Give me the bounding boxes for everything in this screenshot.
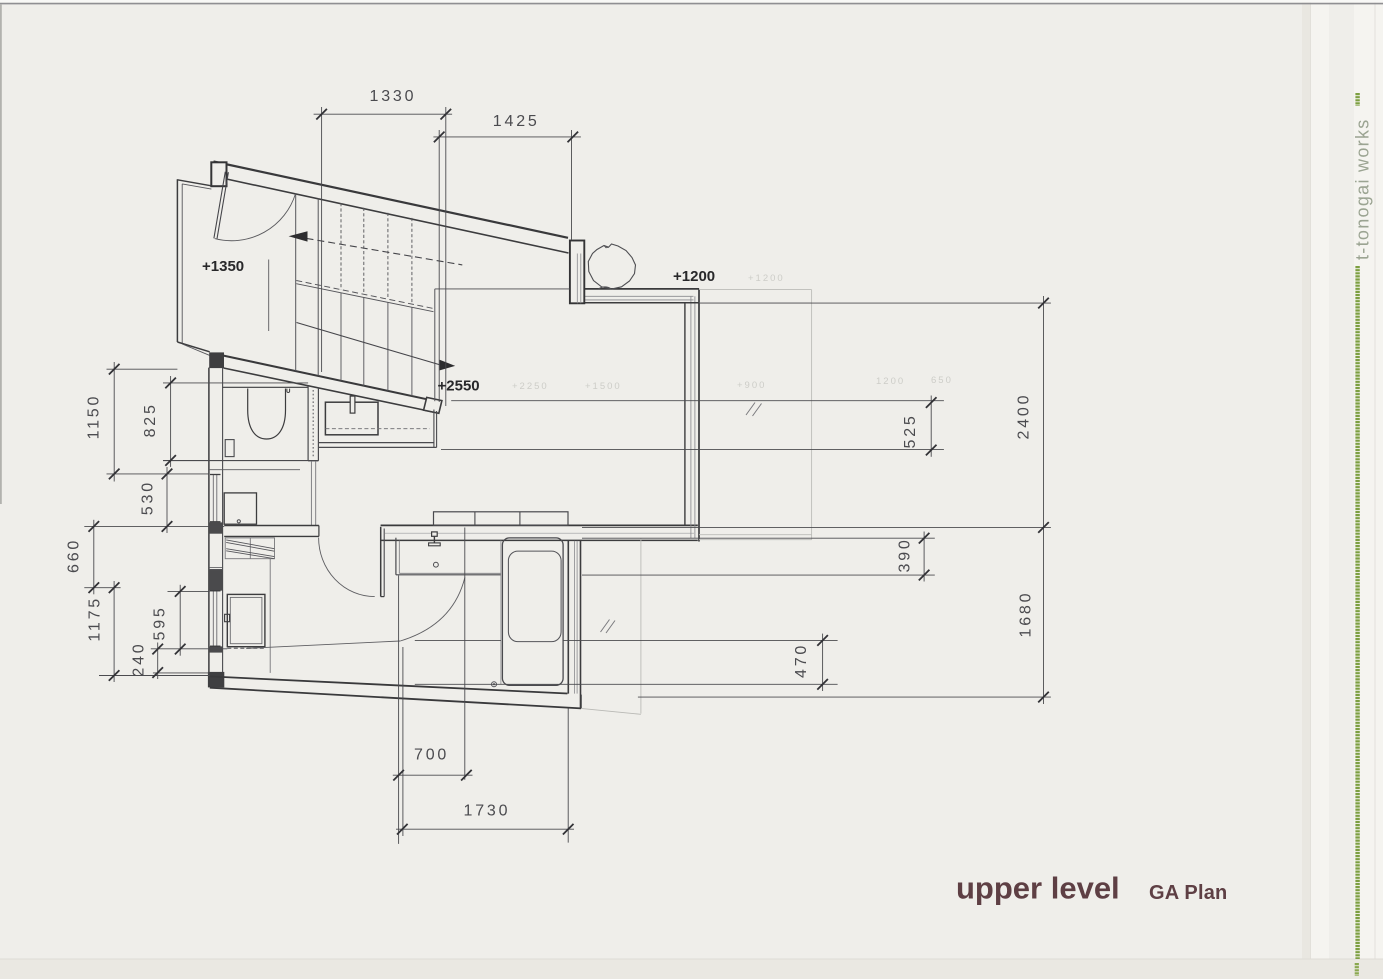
svg-text:+2250: +2250 [512, 381, 549, 392]
svg-text:GA Plan: GA Plan [1149, 882, 1227, 904]
svg-text:t-tonogai works: t-tonogai works [1353, 118, 1373, 260]
svg-text:1200: 1200 [876, 376, 905, 387]
svg-text:2400: 2400 [1016, 393, 1033, 440]
svg-text:1175: 1175 [87, 596, 104, 642]
svg-text:390: 390 [897, 537, 914, 572]
svg-text:upper level: upper level [956, 871, 1120, 906]
svg-text:525: 525 [902, 413, 919, 448]
svg-text:1330: 1330 [370, 88, 417, 105]
svg-text:+2550: +2550 [438, 377, 480, 394]
svg-text:+900: +900 [737, 380, 766, 391]
svg-text:1730: 1730 [464, 802, 511, 819]
svg-text:1680: 1680 [1018, 591, 1035, 638]
svg-text:1150: 1150 [86, 394, 103, 440]
svg-text:240: 240 [131, 641, 148, 676]
svg-text:1425: 1425 [493, 113, 540, 130]
svg-text:+1200: +1200 [748, 273, 785, 284]
svg-text:470: 470 [793, 643, 810, 678]
svg-text:+1200: +1200 [673, 268, 715, 285]
svg-text:650: 650 [931, 375, 953, 386]
svg-text:660: 660 [66, 538, 83, 573]
svg-text:700: 700 [414, 746, 449, 763]
svg-text:530: 530 [140, 480, 157, 515]
svg-text:825: 825 [142, 402, 159, 437]
svg-text:+1350: +1350 [202, 258, 244, 275]
svg-text:+1500: +1500 [585, 381, 622, 392]
svg-text:595: 595 [152, 605, 169, 640]
